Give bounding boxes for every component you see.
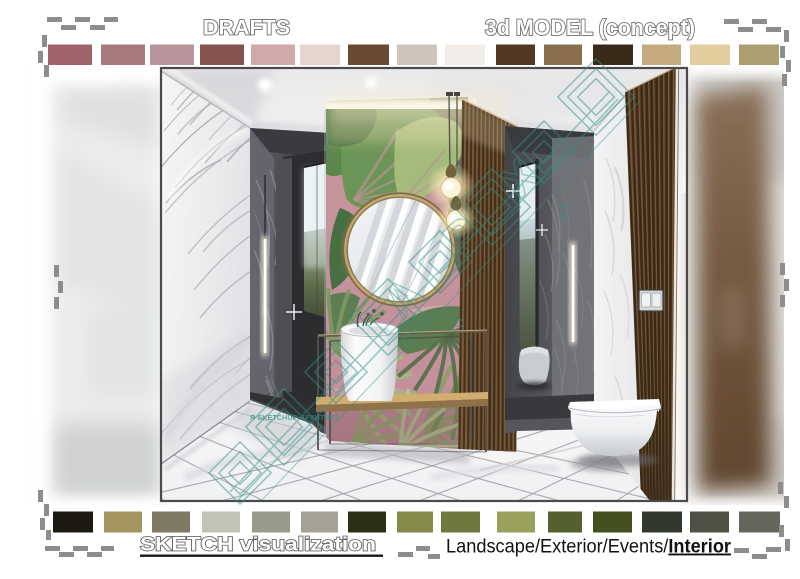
svg-text:Landscape/Exterior/Events/Inte: Landscape/Exterior/Events/Interior: [446, 537, 732, 558]
svg-text:DRAFTS: DRAFTS: [203, 16, 290, 40]
svg-text:3d MODEL (concept): 3d MODEL (concept): [485, 15, 695, 40]
svg-text:Я SKETCHUP·АРХИТЕКТ: Я SKETCHUP·АРХИТЕКТ: [250, 415, 339, 422]
svg-text:SKETCH visualization: SKETCH visualization: [140, 534, 376, 556]
